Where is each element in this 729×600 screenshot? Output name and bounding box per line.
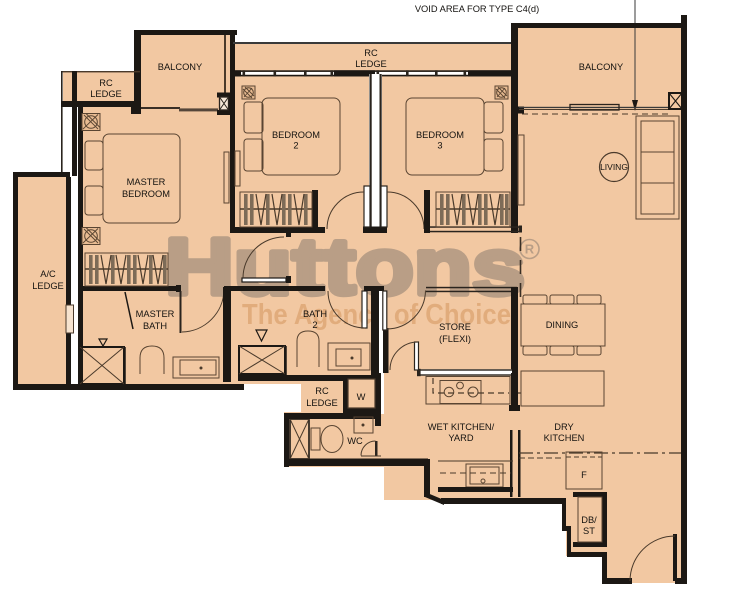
svg-text:VOID AREA FOR TYPE C4(d): VOID AREA FOR TYPE C4(d) xyxy=(415,4,539,14)
svg-text:RC: RC xyxy=(364,48,378,58)
svg-text:DINING: DINING xyxy=(546,320,579,330)
svg-text:RC: RC xyxy=(315,386,329,396)
svg-text:3: 3 xyxy=(437,141,442,151)
svg-text:YARD: YARD xyxy=(448,433,473,443)
svg-text:LEDGE: LEDGE xyxy=(306,398,338,408)
svg-text:KITCHEN: KITCHEN xyxy=(544,433,585,443)
svg-text:BEDROOM: BEDROOM xyxy=(122,189,170,199)
svg-text:BEDROOM: BEDROOM xyxy=(272,130,320,140)
svg-text:WET KITCHEN/: WET KITCHEN/ xyxy=(428,422,495,432)
svg-text:BEDROOM: BEDROOM xyxy=(416,130,464,140)
svg-text:LEDGE: LEDGE xyxy=(32,281,64,291)
svg-text:R: R xyxy=(525,242,535,257)
svg-text:2: 2 xyxy=(293,141,298,151)
svg-text:BATH: BATH xyxy=(303,309,327,319)
svg-text:2: 2 xyxy=(312,320,317,330)
svg-text:RC: RC xyxy=(99,78,113,88)
svg-text:F: F xyxy=(581,470,587,480)
svg-text:A/C: A/C xyxy=(40,269,56,279)
svg-text:BALCONY: BALCONY xyxy=(158,62,202,72)
svg-text:ST: ST xyxy=(583,526,595,536)
svg-text:MASTER: MASTER xyxy=(127,177,166,187)
svg-text:STORE: STORE xyxy=(439,322,471,332)
svg-text:WC: WC xyxy=(347,436,363,446)
svg-text:MASTER: MASTER xyxy=(136,309,175,319)
svg-text:LIVING: LIVING xyxy=(600,162,628,172)
svg-text:Huttons: Huttons xyxy=(165,222,525,311)
svg-text:LEDGE: LEDGE xyxy=(355,59,387,69)
svg-text:(FLEXI): (FLEXI) xyxy=(439,334,471,344)
svg-text:LEDGE: LEDGE xyxy=(90,89,122,99)
svg-text:BATH: BATH xyxy=(143,321,167,331)
svg-text:DRY: DRY xyxy=(554,422,573,432)
svg-text:W: W xyxy=(357,392,366,402)
svg-text:BALCONY: BALCONY xyxy=(579,62,623,72)
svg-text:DB/: DB/ xyxy=(581,515,597,525)
